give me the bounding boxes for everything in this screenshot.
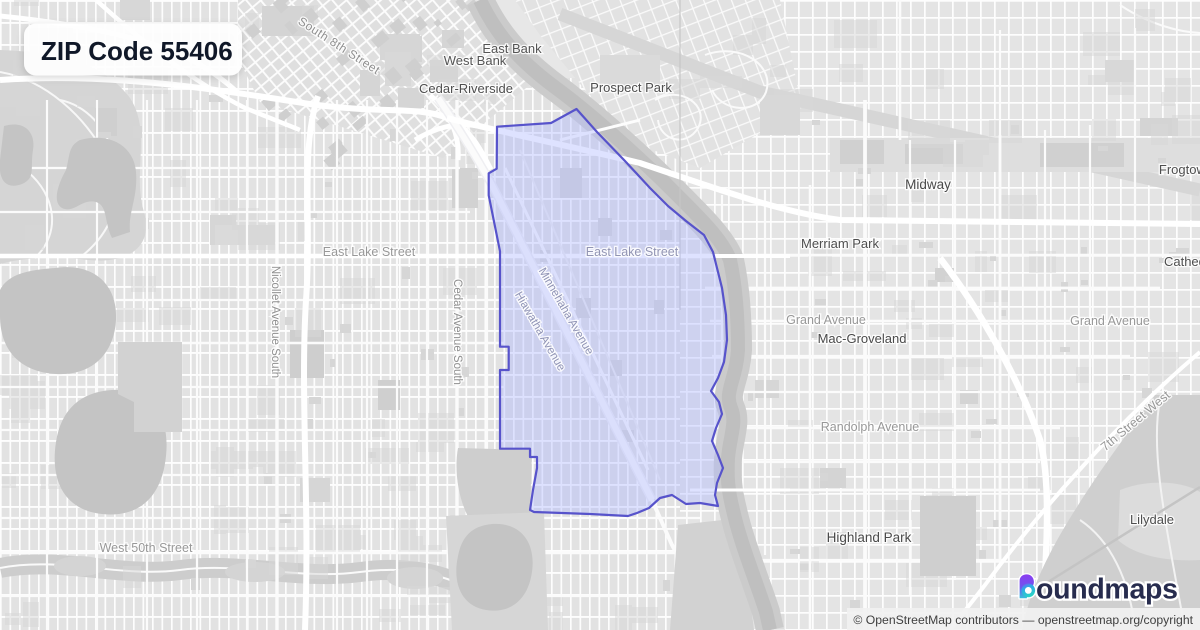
svg-text:Highland Park: Highland Park [827,530,912,545]
svg-text:© OpenStreetMap contributors —: © OpenStreetMap contributors — openstree… [853,613,1193,627]
svg-text:Midway: Midway [905,177,951,192]
svg-text:Cedar-Riverside: Cedar-Riverside [419,81,513,96]
svg-text:Cedar Avenue South: Cedar Avenue South [451,279,463,385]
svg-text:Grand Avenue: Grand Avenue [786,313,866,327]
svg-text:West 50th Street: West 50th Street [100,541,193,555]
svg-text:oundmaps: oundmaps [1036,574,1178,606]
svg-text:West Bank: West Bank [444,53,507,68]
svg-text:East Lake Street: East Lake Street [586,245,679,259]
svg-text:Prospect Park: Prospect Park [590,80,672,95]
svg-text:Merriam Park: Merriam Park [801,236,880,251]
svg-text:Randolph Avenue: Randolph Avenue [821,420,920,434]
svg-text:ZIP Code 55406: ZIP Code 55406 [41,36,233,66]
svg-text:East Lake Street: East Lake Street [323,245,416,259]
svg-text:Cathedral Hill: Cathedral Hill [1164,254,1200,269]
svg-text:Nicollet Avenue South: Nicollet Avenue South [269,266,281,378]
svg-text:Lilydale: Lilydale [1130,512,1174,527]
svg-text:Frogtown: Frogtown [1159,162,1200,177]
svg-text:Grand Avenue: Grand Avenue [1070,314,1150,328]
svg-text:Mac-Groveland: Mac-Groveland [818,331,907,346]
